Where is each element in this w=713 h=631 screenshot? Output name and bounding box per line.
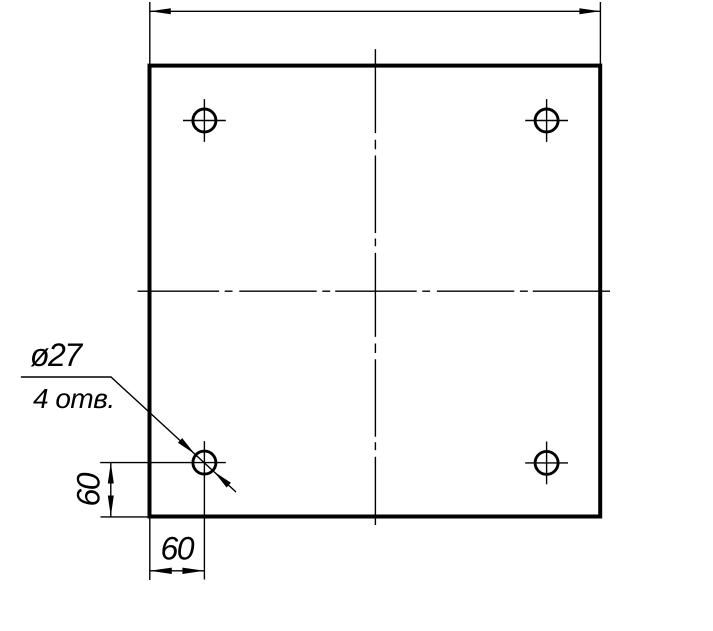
svg-text:60: 60 (70, 472, 106, 506)
svg-text:60: 60 (161, 530, 195, 566)
svg-text:ø27: ø27 (30, 337, 83, 373)
svg-text:4 отв.: 4 отв. (33, 383, 115, 414)
